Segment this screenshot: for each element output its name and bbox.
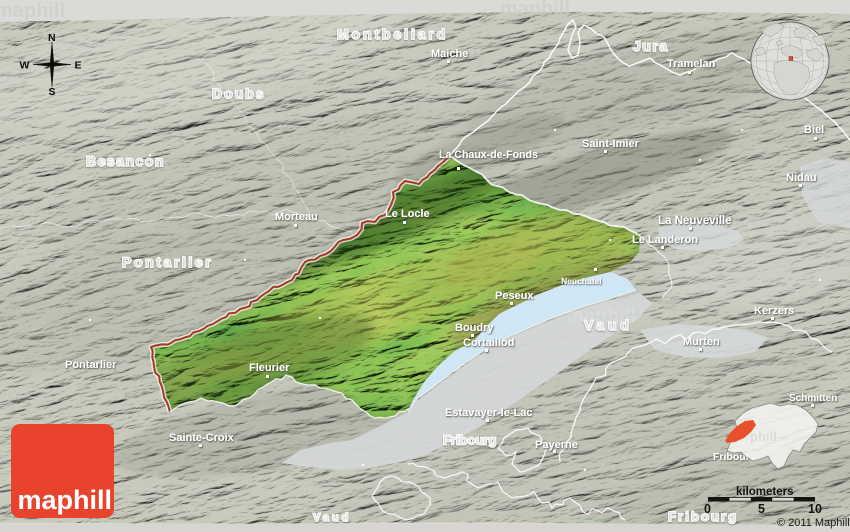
svg-text:Murten: Murten: [683, 336, 720, 348]
svg-text:Le Landeron: Le Landeron: [632, 234, 698, 246]
svg-text:Pontarlier: Pontarlier: [122, 254, 213, 270]
svg-text:5: 5: [758, 502, 765, 516]
svg-text:La Chaux-de-Fonds: La Chaux-de-Fonds: [439, 149, 538, 161]
svg-text:Doubs: Doubs: [212, 86, 266, 102]
svg-text:maphill: maphill: [500, 0, 570, 20]
svg-text:Pontarlier: Pontarlier: [65, 359, 117, 371]
svg-text:Tramelan: Tramelan: [667, 58, 716, 70]
svg-text:© 2011 Maphill: © 2011 Maphill: [777, 517, 850, 529]
svg-text:Maiche: Maiche: [431, 48, 468, 60]
svg-text:W: W: [20, 60, 30, 72]
svg-text:Nidau: Nidau: [786, 172, 817, 184]
svg-text:Morteau: Morteau: [275, 211, 318, 223]
svg-text:Biel: Biel: [804, 124, 824, 136]
svg-text:Fribourg: Fribourg: [443, 433, 496, 448]
svg-text:Sainte-Croix: Sainte-Croix: [169, 432, 235, 444]
svg-text:E: E: [75, 60, 82, 72]
svg-text:phill: phill: [750, 429, 777, 444]
svg-text:Schmitten: Schmitten: [789, 393, 837, 404]
svg-text:maphill: maphill: [0, 0, 65, 22]
svg-text:Neuchatel: Neuchatel: [561, 276, 602, 286]
svg-text:Le Locle: Le Locle: [385, 208, 430, 220]
svg-text:La Neuveville: La Neuveville: [658, 215, 732, 227]
svg-text:Fleurier: Fleurier: [249, 362, 290, 374]
svg-text:Vaud: Vaud: [313, 512, 351, 524]
svg-text:Payerne: Payerne: [535, 439, 578, 451]
svg-text:10: 10: [808, 502, 822, 516]
svg-text:Boudry: Boudry: [455, 322, 494, 334]
svg-text:Jura: Jura: [633, 38, 669, 54]
svg-text:Kerzers: Kerzers: [754, 305, 794, 317]
svg-text:Saint-Imier: Saint-Imier: [582, 138, 640, 150]
svg-text:kilometers: kilometers: [736, 486, 794, 498]
svg-text:Montbeliard: Montbeliard: [337, 26, 448, 42]
svg-text:Cortaillod: Cortaillod: [463, 337, 514, 349]
svg-text:Besancon: Besancon: [86, 153, 165, 169]
svg-text:N: N: [48, 32, 56, 44]
svg-text:S: S: [49, 86, 56, 98]
svg-text:maphill: maphill: [18, 485, 113, 515]
svg-text:Estavayer-le-Lac: Estavayer-le-Lac: [445, 407, 532, 419]
svg-text:Vaud: Vaud: [584, 317, 633, 333]
svg-text:Peseux: Peseux: [495, 290, 534, 302]
svg-text:0: 0: [704, 502, 711, 516]
